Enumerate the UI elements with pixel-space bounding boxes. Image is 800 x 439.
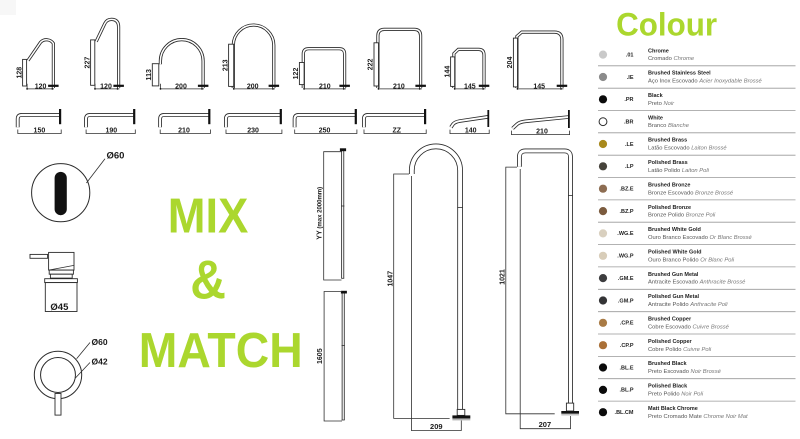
svg-text:Bronze Escovado Bronze Brossé: Bronze Escovado Bronze Brossé: [648, 190, 734, 196]
svg-text:.CP.P: .CP.P: [620, 343, 634, 349]
svg-text:.BZ.E: .BZ.E: [619, 187, 633, 193]
svg-text:113: 113: [146, 69, 153, 80]
svg-text:230: 230: [247, 128, 259, 135]
svg-text:213: 213: [222, 59, 229, 71]
svg-text:250: 250: [319, 128, 331, 135]
svg-text:&: &: [190, 250, 226, 311]
svg-text:140: 140: [465, 128, 477, 135]
svg-text:.WG.P: .WG.P: [617, 254, 634, 260]
svg-text:210: 210: [393, 83, 405, 90]
svg-text:Brushed Copper: Brushed Copper: [648, 317, 692, 323]
svg-text:.WG.E: .WG.E: [617, 231, 634, 237]
svg-text:Matt Black Chrome: Matt Black Chrome: [648, 406, 698, 412]
svg-text:.BL.P: .BL.P: [619, 388, 633, 394]
svg-text:222: 222: [368, 58, 375, 70]
svg-text:227: 227: [84, 57, 91, 69]
svg-text:Ouro Branco Escovado Or Blanc: Ouro Branco Escovado Or Blanc Brossé: [648, 235, 753, 241]
svg-text:204: 204: [507, 57, 514, 69]
svg-text:Antracite Polido Anthracite Po: Antracite Polido Anthracite Poli: [648, 302, 728, 308]
svg-text:Preto Escovado Noir Brossé: Preto Escovado Noir Brossé: [648, 369, 722, 375]
svg-text:Ø60: Ø60: [107, 150, 125, 161]
svg-text:MATCH: MATCH: [139, 324, 303, 378]
svg-text:Brushed Black: Brushed Black: [648, 361, 687, 367]
svg-text:Preto Polido Noir Poli: Preto Polido Noir Poli: [648, 392, 704, 398]
svg-text:Ø45: Ø45: [50, 302, 69, 313]
svg-text:200: 200: [247, 83, 259, 90]
svg-text:210: 210: [178, 128, 190, 135]
svg-text:MIX: MIX: [168, 188, 249, 243]
svg-text:122: 122: [293, 68, 300, 80]
svg-text:1021: 1021: [499, 269, 506, 285]
svg-text:Brushed Bronze: Brushed Bronze: [648, 182, 690, 188]
svg-text:120: 120: [35, 83, 47, 90]
svg-text:.BL.E: .BL.E: [619, 365, 633, 371]
svg-text:144: 144: [444, 66, 451, 78]
svg-text:White: White: [648, 115, 663, 121]
svg-text:Cromado Chrome: Cromado Chrome: [648, 56, 695, 62]
svg-text:1605: 1605: [317, 348, 324, 364]
svg-text:Polished Brass: Polished Brass: [648, 160, 688, 166]
svg-text:ZZ: ZZ: [393, 128, 402, 135]
svg-text:Brushed Gun Metal: Brushed Gun Metal: [648, 272, 699, 278]
svg-text:Aço Inox Escovado Acier Inoxyd: Aço Inox Escovado Acier Inoxydable Bross…: [648, 79, 763, 85]
svg-text:Cobre Escovado Cuivre Brossé: Cobre Escovado Cuivre Brossé: [648, 324, 730, 330]
svg-text:210: 210: [319, 83, 331, 90]
svg-text:Polished White Gold: Polished White Gold: [648, 249, 701, 255]
svg-text:200: 200: [175, 83, 187, 90]
svg-text:Latão Escovado Laiton Brossé: Latão Escovado Laiton Brossé: [648, 146, 727, 152]
svg-text:.CP.E: .CP.E: [620, 321, 634, 327]
svg-text:190: 190: [105, 128, 117, 135]
svg-text:Ouro Branco Polido Or Blanc Po: Ouro Branco Polido Or Blanc Poli: [648, 257, 735, 263]
svg-text:Preto Cromado Mate Chrome Noir: Preto Cromado Mate Chrome Noir Mat: [648, 414, 748, 420]
svg-text:Preto Noir: Preto Noir: [648, 101, 675, 107]
svg-text:Polished Black: Polished Black: [648, 384, 688, 390]
svg-text:Cobre Polido Cuivre Poli: Cobre Polido Cuivre Poli: [648, 347, 712, 353]
svg-text:Black: Black: [648, 93, 664, 99]
svg-text:.PR: .PR: [624, 97, 633, 103]
svg-text:120: 120: [100, 83, 112, 90]
svg-text:1047: 1047: [387, 271, 394, 287]
svg-text:.LP: .LP: [625, 164, 634, 170]
svg-text:.BL.CM: .BL.CM: [615, 410, 634, 416]
svg-text:145: 145: [464, 83, 476, 90]
svg-text:Ø60: Ø60: [92, 337, 108, 347]
svg-text:150: 150: [34, 128, 46, 135]
svg-text:210: 210: [536, 129, 548, 136]
svg-text:207: 207: [539, 420, 552, 429]
svg-text:Brushed White Gold: Brushed White Gold: [648, 227, 701, 233]
svg-text:Branco Blanche: Branco Blanche: [648, 123, 690, 129]
svg-text:Polished Copper: Polished Copper: [648, 339, 693, 345]
svg-text:Antracite Escovado Anthracite: Antracite Escovado Anthracite Brossé: [648, 280, 746, 286]
svg-text:Brushed Brass: Brushed Brass: [648, 138, 687, 144]
svg-text:Brushed Stainless Steel: Brushed Stainless Steel: [648, 71, 711, 77]
svg-text:.IE: .IE: [627, 75, 634, 81]
svg-text:.BZ.P: .BZ.P: [619, 209, 633, 215]
svg-text:.GM.P: .GM.P: [618, 298, 634, 304]
svg-text:Ø42: Ø42: [92, 357, 108, 367]
svg-text:209: 209: [430, 422, 443, 431]
svg-text:.01: .01: [626, 52, 634, 58]
svg-text:Latão Polido Laiton Poli: Latão Polido Laiton Poli: [648, 168, 710, 174]
svg-text:145: 145: [533, 83, 545, 90]
svg-text:Polished Gun Metal: Polished Gun Metal: [648, 294, 700, 300]
svg-text:Polished Bronze: Polished Bronze: [648, 205, 691, 211]
svg-text:YY (max 2000mm): YY (max 2000mm): [317, 187, 324, 240]
svg-text:128: 128: [16, 67, 23, 79]
svg-text:Chrome: Chrome: [648, 48, 669, 54]
svg-text:Colour: Colour: [616, 6, 717, 42]
svg-text:.LE: .LE: [625, 142, 634, 148]
svg-text:Bronze Polido Bronze Poli: Bronze Polido Bronze Poli: [648, 213, 716, 219]
svg-text:.GM.E: .GM.E: [618, 276, 634, 282]
svg-text:.BR: .BR: [624, 120, 634, 126]
